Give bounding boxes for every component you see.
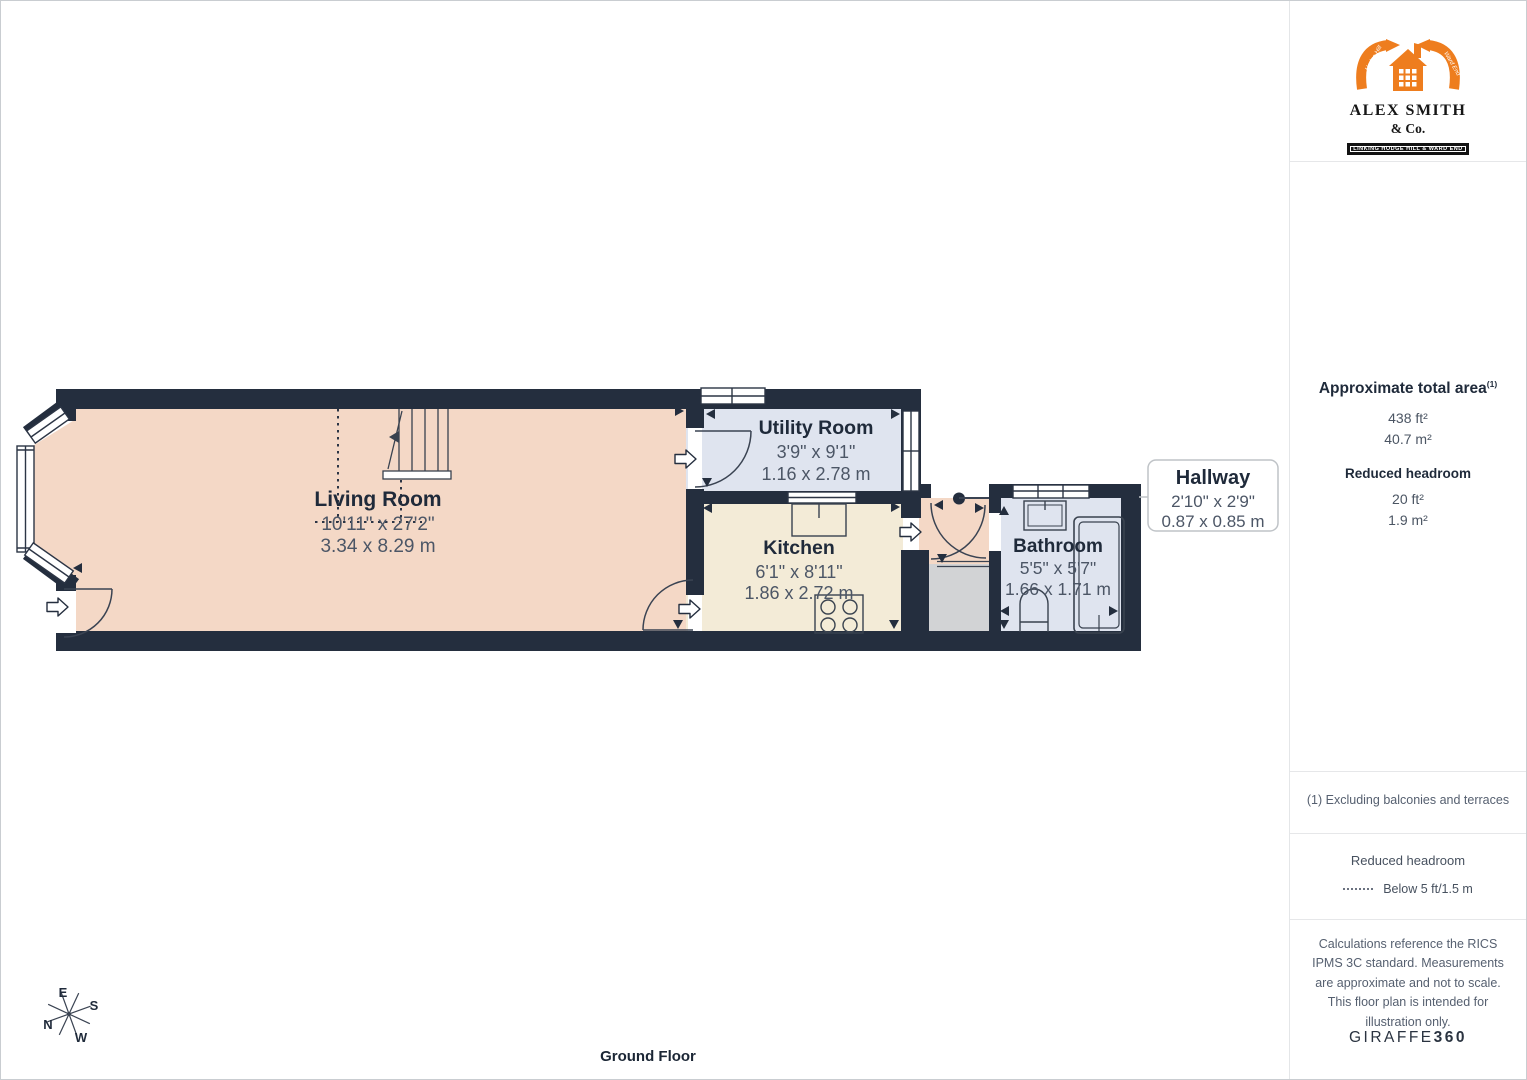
- kitchen-name: Kitchen: [763, 537, 835, 559]
- area-title-sup: (1): [1487, 379, 1497, 389]
- agency-logo-mark: Hodge Hill Ward End: [1356, 39, 1460, 95]
- kitchen-imperial: 6'1" x 8'11": [755, 562, 842, 582]
- divider: [1290, 771, 1526, 772]
- floor-label: Ground Floor: [600, 1048, 696, 1065]
- agency-suffix: & Co.: [1290, 121, 1526, 137]
- kitchen-metric: 1.86 x 2.72 m: [744, 583, 853, 603]
- utility-room-name: Utility Room: [759, 417, 874, 439]
- hallway-metric: 0.87 x 0.85 m: [1161, 512, 1264, 531]
- legend-item: Below 5 ft/1.5 m: [1383, 882, 1473, 896]
- compass-south: S: [90, 998, 99, 1013]
- compass-west: W: [75, 1030, 88, 1045]
- dotted-line-swatch: [1343, 888, 1373, 890]
- area-title-text: Approximate total area: [1319, 380, 1487, 397]
- agency-name: ALEX SMITH: [1290, 102, 1526, 120]
- legend-title: Reduced headroom: [1290, 853, 1526, 868]
- area-sqm: 40.7 m²: [1290, 429, 1526, 450]
- area-sqft: 438 ft²: [1290, 408, 1526, 429]
- house-icon: [1389, 43, 1427, 91]
- compass-north: N: [43, 1017, 52, 1032]
- compass-icon: E S N W: [43, 985, 98, 1045]
- reduced-headroom-legend: Reduced headroom Below 5 ft/1.5 m: [1290, 853, 1526, 896]
- hallway-imperial: 2'10" x 2'9": [1171, 492, 1255, 511]
- divider: [1290, 919, 1526, 920]
- divider: [1290, 833, 1526, 834]
- bathroom-name: Bathroom: [1013, 536, 1103, 557]
- area-title: Approximate total area(1): [1290, 379, 1526, 398]
- agency-logo: Hodge Hill Ward End ALEX SMITH & Co.: [1290, 39, 1526, 155]
- provider-name: GIRAFFE: [1349, 1029, 1434, 1046]
- living-room-metric: 3.34 x 8.29 m: [320, 536, 435, 557]
- storage-floor: [929, 564, 989, 633]
- bathroom-metric: 1.66 x 1.71 m: [1005, 579, 1111, 599]
- utility-room-imperial: 3'9" x 9'1": [777, 442, 856, 462]
- reduced-sqm: 1.9 m²: [1290, 510, 1526, 531]
- provider-logo: GIRAFFE360: [1290, 1029, 1526, 1047]
- reduced-sqft: 20 ft²: [1290, 489, 1526, 510]
- hallway-callout: Hallway 2'10" x 2'9" 0.87 x 0.85 m: [1139, 460, 1278, 531]
- hallway-name: Hallway: [1176, 467, 1251, 489]
- area-summary: Approximate total area(1) 438 ft² 40.7 m…: [1290, 379, 1526, 531]
- bathroom-imperial: 5'5" x 5'7": [1020, 558, 1097, 578]
- floorplan: Living Room 10'11" x 27'2" 3.34 x 8.29 m…: [1, 1, 1291, 1080]
- info-sidebar: Hodge Hill Ward End ALEX SMITH & Co.: [1289, 1, 1526, 1079]
- reduced-headroom-title: Reduced headroom: [1290, 466, 1526, 481]
- utility-room-metric: 1.16 x 2.78 m: [761, 464, 870, 484]
- living-room-imperial: 10'11" x 27'2": [321, 514, 434, 535]
- compass-east: E: [59, 985, 68, 1000]
- disclaimer: Calculations reference the RICS IPMS 3C …: [1308, 935, 1508, 1032]
- area-footnote: (1) Excluding balconies and terraces: [1290, 793, 1526, 807]
- room-fills: [31, 406, 1123, 633]
- provider-name-bold: 360: [1434, 1029, 1467, 1046]
- divider: [1290, 161, 1526, 162]
- agency-tagline: LINKING HODGE HILL & WARD END: [1347, 143, 1468, 155]
- living-room-name: Living Room: [314, 488, 441, 511]
- floorplan-page: Living Room 10'11" x 27'2" 3.34 x 8.29 m…: [0, 0, 1527, 1080]
